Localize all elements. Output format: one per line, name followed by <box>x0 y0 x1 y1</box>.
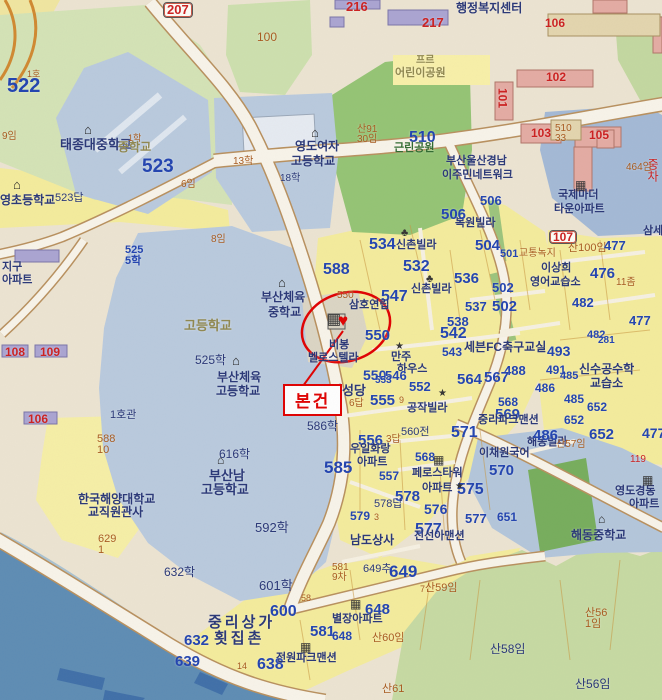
star-icon: ★ <box>438 389 447 399</box>
place-label-yeongdo-kyungdong-2: 아파트 <box>629 499 659 510</box>
lot-number-label: 3 <box>374 513 379 522</box>
place-label-busan-pe-high-1: 부산체육 <box>217 371 261 383</box>
lot-number-label: 581 9차 <box>332 563 349 584</box>
lot-number-label: 산60임 <box>372 633 404 644</box>
star-icon: ★ <box>455 482 464 492</box>
place-label-raw-fish-village: 횟집촌 <box>214 631 264 647</box>
place-label: 586학 <box>307 420 338 432</box>
place-label-elementary-school: 영초등학교 <box>0 194 55 206</box>
lot-number-label: 555 <box>370 393 395 409</box>
subject-callout[interactable]: 본건 <box>283 384 342 416</box>
lot-number-label: 523 <box>142 157 174 177</box>
clover-icon: ♣ <box>426 274 433 285</box>
lot-number-label: 567 <box>484 370 509 386</box>
lot-number-label: 477 <box>642 426 662 441</box>
lot-number-label: 576 <box>424 502 447 517</box>
lot-number-label: 652 <box>587 401 607 413</box>
place-label-town-apartment-2: 타운아파트 <box>554 204 605 215</box>
lot-number-label: 산100임 <box>568 243 607 254</box>
place-label: 649추 <box>363 564 391 575</box>
lot-number-label: 579 <box>350 510 370 522</box>
lot-number-label: 525 5학 <box>125 245 143 268</box>
place-label-jungni-park-mansion: 중리파크맨션 <box>478 415 539 426</box>
lot-number-label: 557 <box>379 470 399 482</box>
place-label-busan-south-high-2: 고등학교 <box>201 483 249 497</box>
school-icon: ⌂ <box>13 178 21 191</box>
lot-number-label: 652 <box>589 427 614 443</box>
lot-number-label: 502 <box>492 299 517 315</box>
lot-number-label: 537 <box>465 300 487 314</box>
lot-number-label: 577 <box>465 512 487 526</box>
lot-number-label: 506 <box>441 207 466 223</box>
lot-number-label: 510 33 <box>555 124 572 145</box>
place-label-busan-south-high-1: 부산남 <box>209 469 245 483</box>
place-label: 공작빌라 <box>407 403 447 414</box>
lot-number-label: 216 <box>346 0 368 14</box>
lot-number-label: 485 <box>560 371 578 382</box>
lot-number-label: 1학 <box>128 134 141 143</box>
lot-number-label: 6임 <box>181 180 196 190</box>
place-label: 신촌빌라 <box>411 284 451 295</box>
lot-number-label: 588 10 <box>97 434 115 457</box>
lot-number-label: 산57임 <box>556 440 586 450</box>
place-label: 523답 <box>55 193 83 204</box>
lot-number-label: 101 <box>496 88 508 108</box>
lot-number-label: 476 <box>590 266 615 282</box>
place-label-migrant-network-2: 이주민네트워크 <box>442 170 513 181</box>
place-label-yeongdo-girls-high-2: 고등학교 <box>291 155 335 167</box>
lot-number-label: 600 <box>270 604 297 621</box>
place-label: 525학 <box>195 354 226 366</box>
place-label: 1호관 <box>110 410 136 421</box>
lot-number-label: 산59임 <box>425 583 457 594</box>
lot-number-label: 553 <box>375 376 392 386</box>
lot-number-label: 477 <box>629 314 651 328</box>
school-icon: ⌂ <box>84 123 92 136</box>
place-label-busan-pe-middle-2: 중학교 <box>268 306 301 318</box>
lot-number-label: 8임 <box>211 235 226 245</box>
lot-number-label: 106 <box>545 17 565 29</box>
place-label-busan-pe-middle-1: 부산체육 <box>261 291 305 303</box>
place-label: 632학 <box>164 566 195 578</box>
lot-number-label: 570 <box>489 463 514 479</box>
lot-number-label: 486 <box>535 382 555 394</box>
lot-number-label: 105 <box>589 129 609 141</box>
lot-number-label: 13학 <box>233 157 253 167</box>
parcel-badge-207: 207 <box>163 2 193 18</box>
place-label-english-academy-2: 영어교습소 <box>530 277 581 288</box>
clover-icon: ♣ <box>401 228 408 239</box>
lot-number-label: 564 <box>457 372 482 388</box>
place-label: 프르 <box>416 56 434 66</box>
school-icon: ⌂ <box>278 276 286 289</box>
lot-number-label: 504 <box>475 238 500 254</box>
place-label-korean-academy: 이채원국어 <box>479 448 530 459</box>
place-label: 601학 <box>259 579 293 593</box>
place-label-jungni-shops: 중리상가 <box>208 615 275 631</box>
place-label: 592학 <box>255 521 289 535</box>
place-label: 산56임 <box>575 678 610 690</box>
lot-number-label: 485 <box>564 393 584 405</box>
place-label: 삼호연립 <box>349 300 389 311</box>
lot-number-label: 501 <box>500 249 518 260</box>
place-label: 지구 <box>2 262 22 273</box>
place-label-welfare-center: 행정복지센터 <box>456 2 522 14</box>
place-label: 아파트 <box>2 275 32 286</box>
lot-number-label: 652 <box>564 414 584 426</box>
place-label-children-park: 어린이공원 <box>395 68 446 79</box>
subject-marker-icon: ♥ <box>338 312 348 329</box>
place-label-wooil-apartment-2: 아파트 <box>357 457 387 468</box>
place-label-subject-building-1: 비봉 <box>329 340 349 351</box>
building-icon: ▦ <box>350 598 361 610</box>
place-label: 18학 <box>280 174 300 184</box>
lot-number-label: 9 <box>399 396 404 405</box>
lot-number-label: 550 <box>365 328 390 344</box>
lot-number-label: 11좀 <box>616 278 636 288</box>
lot-number-label: 651 <box>497 511 517 523</box>
place-label: 진선아맨션 <box>414 531 465 542</box>
lot-number-label: 585 <box>324 459 352 477</box>
school-icon: ⌂ <box>598 513 605 525</box>
place-label-haedong-middle-school: 해동중학교 <box>571 529 626 541</box>
building-icon: ▦ <box>300 641 311 653</box>
place-label: 560전 <box>401 427 429 438</box>
building-icon: ▦ <box>575 179 586 191</box>
place-label-math-academy-1: 신수공수학 <box>579 363 634 375</box>
lot-number-label: 649 <box>389 563 417 581</box>
lot-number-label: 281 <box>598 336 615 346</box>
lot-number-label: 9임 <box>2 132 17 142</box>
lot-number-label: 502 <box>492 281 514 295</box>
lot-number-label: 106 <box>28 413 48 425</box>
lot-number-label: 산56 1임 <box>585 608 607 631</box>
lot-number-label: 629 1 <box>98 534 116 557</box>
lot-number-label: 119 <box>630 455 646 465</box>
lot-number-label: 산61 <box>382 684 404 695</box>
star-icon: ★ <box>395 342 404 352</box>
lot-number-label: 103 <box>531 127 551 139</box>
school-icon: ⌂ <box>232 354 240 367</box>
lot-number-label: 522 <box>7 76 40 97</box>
place-label-perostower-1: 페로스타워 <box>412 468 463 479</box>
place-label-neighborhood-park: 근린공원 <box>394 143 434 154</box>
lot-number-label: 571 <box>451 425 478 442</box>
place-label: 578답 <box>374 499 402 510</box>
lot-number-label: 534 <box>369 237 396 254</box>
lot-number-label: 493 <box>547 344 570 359</box>
lot-number-label: 교통녹지 <box>519 249 556 259</box>
place-label-yeongdo-girls-high-1: 영도여자 <box>295 140 339 152</box>
place-label-seven-fc: 세븐FC축구교실 <box>464 341 546 353</box>
lot-number-label: 552 <box>409 380 431 394</box>
lot-number-label: 536 <box>454 271 479 287</box>
place-label-subject-building-2: 벨로스텔라 <box>308 353 359 364</box>
place-label-yeongdo-kyungdong-1: 영도경동 <box>615 486 655 497</box>
place-label-maritime-univ-2: 교직원관사 <box>88 506 143 518</box>
place-label: 삼세 <box>643 226 662 237</box>
place-label-jeonwon-park-mansion: 전원파크맨션 <box>276 653 337 664</box>
school-icon: ⌂ <box>217 454 224 466</box>
place-label-wooil-apartment-1: 우일화랑 <box>350 444 390 455</box>
place-label: 산58임 <box>490 643 525 655</box>
place-label-busan-pe-high-2: 고등학교 <box>216 385 260 397</box>
lot-number-label: 543 <box>442 346 462 358</box>
place-label: 고등학교 <box>184 319 232 333</box>
lot-number-label: 477 <box>604 239 626 253</box>
lot-number-label: 108 <box>5 346 25 358</box>
lot-number-label: 542 <box>440 326 467 343</box>
lot-number-label: 6답 <box>349 399 364 409</box>
lot-number-label: 산91 30임 <box>357 125 377 146</box>
lot-number-label: 482 <box>572 296 594 310</box>
lot-number-label: 648 <box>332 630 352 642</box>
place-label: 만주 <box>391 352 411 363</box>
lot-number-label: 100 <box>257 31 277 43</box>
lot-number-label: 639 <box>175 654 200 670</box>
lot-number-label: 506 <box>480 194 502 208</box>
lot-number-label: 588 <box>323 262 350 279</box>
place-label-namdo-sangsa: 남도상사 <box>350 534 394 546</box>
place-label-math-academy-2: 교습소 <box>590 377 623 389</box>
lot-number-label: 14 <box>237 662 247 671</box>
cadastral-map: ▦ ♥ 본건 207216217행정복지센터106102101103510 33… <box>0 0 662 700</box>
place-label-perostower-2: 아파트 <box>422 483 452 494</box>
school-icon: ⌂ <box>311 126 319 139</box>
lot-number-label: 109 <box>40 346 60 358</box>
place-label: 신촌빌라 <box>396 240 436 251</box>
place-label-migrant-network-1: 부산울산경남 <box>446 156 507 167</box>
place-label-english-academy-1: 이상희 <box>541 263 571 274</box>
lot-number-label: 58 <box>301 594 311 603</box>
lot-number-label: 217 <box>422 16 444 30</box>
place-label-maritime-univ-1: 한국해양대학교 <box>78 493 155 505</box>
lot-number-label: 632 <box>184 633 209 649</box>
lot-number-label: 486 <box>533 428 558 444</box>
lot-number-label: 102 <box>546 71 566 83</box>
lot-number-label: 464임 <box>626 163 652 173</box>
building-icon: ▦ <box>433 454 444 466</box>
building-icon: ▦ <box>642 474 653 486</box>
place-label-byeoljang-apartment: 별장아파트 <box>332 614 383 625</box>
